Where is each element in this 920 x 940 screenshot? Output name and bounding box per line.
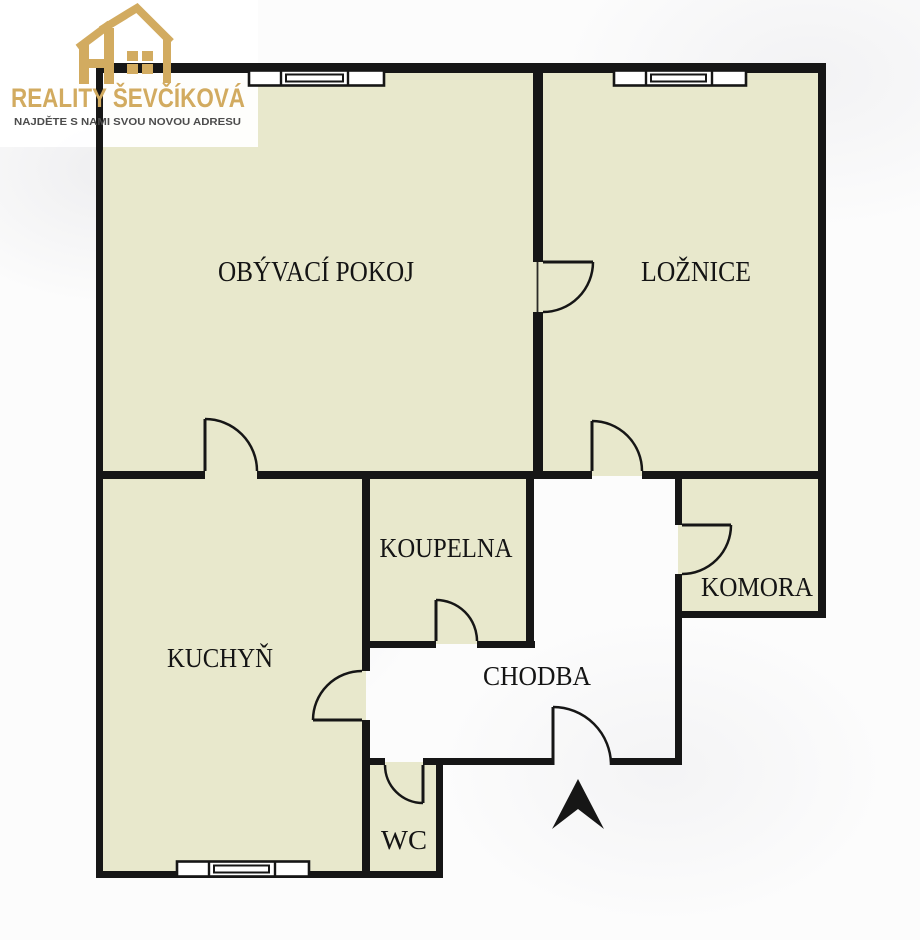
wall-segment [96,63,103,878]
wall-segment [675,611,826,618]
wall-segment [675,479,682,525]
wall-segment [818,63,826,617]
wall-segment [533,312,543,479]
wall-segment [642,471,826,479]
logo-tagline: NAJDĚTE S NAMI SVOU NOVOU ADRESU [14,115,241,128]
wall-segment [477,641,535,648]
door-entrance [553,707,611,765]
room-label-loznice: LOŽNICE [641,257,751,288]
wall-segment [436,758,443,878]
room-label-chodba: CHODBA [483,661,591,691]
wall-segment [611,758,682,765]
wall-segment [362,641,436,648]
room-label-kuchyn: KUCHYŇ [167,643,273,673]
floorplan-image: OBÝVACÍ POKOJ LOŽNICE KOUPELNA KOMORA KU… [0,0,920,940]
room-label-obyvaci-pokoj: OBÝVACÍ POKOJ [218,257,414,288]
north-arrow-icon [552,779,604,829]
wall-segment [675,574,682,765]
wall-segment [533,73,543,262]
window-loznice [614,71,746,86]
room-wc-area [366,762,440,874]
logo-title: REALITY ŠEVČÍKOVÁ [11,82,245,113]
window-kuchyn [177,862,309,877]
wall-segment [526,479,534,647]
room-label-wc: WC [381,825,427,855]
wall-segment [362,720,370,871]
room-kuchyn-area [100,472,366,874]
room-fills [100,66,822,874]
wall-segment [96,471,205,479]
floorplan-svg: OBÝVACÍ POKOJ LOŽNICE KOUPELNA KOMORA KU… [0,0,920,940]
window-obyvaci [249,71,384,86]
room-label-komora: KOMORA [701,572,813,602]
wall-segment [362,758,385,765]
room-label-koupelna: KOUPELNA [380,533,513,563]
